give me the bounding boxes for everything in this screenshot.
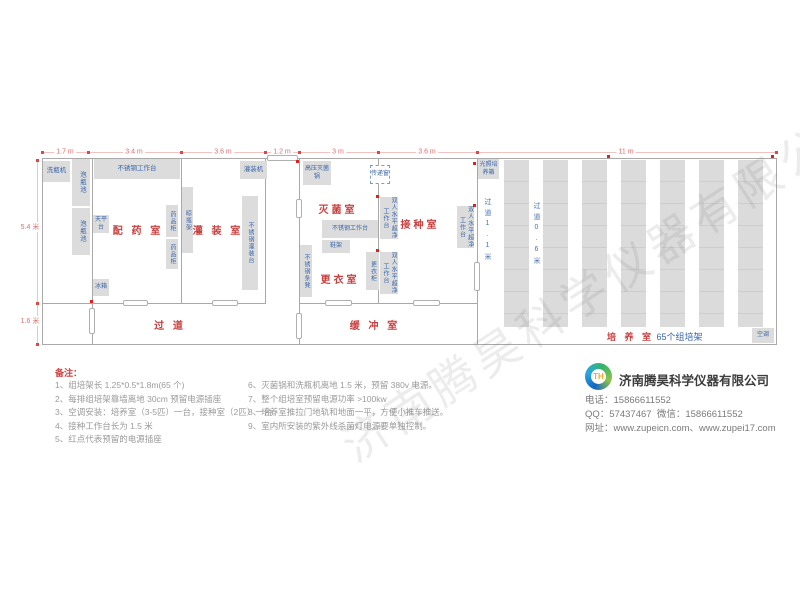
dim-label-2: 3.4 m (123, 149, 145, 156)
equip-steel-workbench-top: 不锈钢工作台 (94, 159, 180, 179)
dim-tick (180, 151, 183, 154)
equip-clean-bench-3: 双人水平超净工作台 (457, 206, 474, 248)
company-name: 济南腾昊科学仪器有限公司 (619, 370, 769, 389)
equip-bottle-drying-rack: 晾瓶架 (182, 187, 193, 253)
wechat-label: 微信： (657, 409, 686, 420)
dim-label-6: 3.6 m (416, 149, 438, 156)
dim-label-1: 1.7 m (54, 149, 76, 156)
equip-balance-table: 天平台 (93, 215, 109, 233)
room-label-corridor: 过 道 (154, 317, 186, 332)
equip-medicine-cabinet-1: 药品柜 (166, 205, 178, 237)
dimension-line-top (42, 152, 776, 153)
dim-label-left-1: 5.4 米 (19, 222, 42, 232)
logo-initials: TH (585, 363, 612, 390)
dim-label-5: 3 m (330, 149, 346, 156)
aisle-label-1: 过道1.1米 (482, 198, 492, 290)
room-label-changing: 更衣室 (321, 271, 360, 286)
wall-segment (42, 344, 777, 345)
outlet-dot (90, 300, 93, 303)
outlet-dot (296, 160, 299, 163)
wall-segment (42, 158, 43, 345)
dim-tick (377, 151, 380, 154)
aisle-label-2: 过道0.6米 (531, 202, 541, 294)
wall-segment (42, 303, 123, 304)
equip-filling-machine: 灌装机 (240, 161, 267, 179)
dim-tick (264, 151, 267, 154)
culture-rack-column (699, 160, 724, 327)
dim-tick (36, 302, 39, 305)
door-symbol (296, 199, 302, 218)
phone-label: 电话： (585, 395, 614, 406)
wechat-number: 15866611552 (685, 409, 742, 420)
door-symbol (413, 300, 440, 306)
dim-tick (476, 151, 479, 154)
note-item-3: 3、空调安装：培养室（3-5匹）一台，接种室（2匹）一台。 (55, 406, 281, 420)
door-symbol (325, 300, 352, 306)
outlet-dot (376, 195, 379, 198)
dim-label-3: 3.6 m (212, 149, 234, 156)
dim-tick (36, 343, 39, 346)
equip-steel-bench-stool: 不锈钢条凳 (300, 245, 312, 297)
wall-segment (238, 303, 265, 304)
culture-rack-column (738, 160, 763, 327)
note-item-5: 5、红点代表预留的电源插座 (55, 433, 281, 447)
wall-segment (352, 303, 413, 304)
equip-air-conditioner: 空调 (752, 328, 774, 343)
equip-clean-bench-1: 双人水平超净工作台 (380, 197, 398, 239)
note-item-2: 2、每排组培架靠墙离地 30cm 预留电源插座 (55, 393, 281, 407)
web-urls: www.zupeicn.com、www.zupei17.com (614, 423, 776, 434)
door-sliding-culture (474, 262, 480, 291)
wall-segment (92, 334, 93, 345)
door-symbol (296, 313, 302, 339)
culture-rack-count: 65个组培架 (657, 332, 703, 342)
wall-segment (148, 303, 212, 304)
dim-label-7: 11 m (616, 149, 635, 156)
door-symbol (89, 308, 95, 334)
culture-rack-column (582, 160, 607, 327)
door-entry (267, 155, 298, 161)
floorplan-canvas: 济南腾昊科学仪器有限公司 1.7 m 3.4 m 3.6 m 1.2 m 3 m… (0, 0, 800, 600)
door-symbol (212, 300, 238, 306)
dim-tick (41, 151, 44, 154)
contact-qq-wechat: QQ：57437467 微信：15866611552 (585, 406, 743, 420)
notes-column-2: 6、灭菌锅和洗瓶机离地 1.5 米，预留 380v 电源。 7、整个组培室预留电… (248, 379, 448, 433)
culture-room-name: 培 养 室 (607, 332, 654, 342)
dim-tick (87, 151, 90, 154)
equip-fridge: 冰箱 (93, 279, 109, 296)
culture-rack-column (621, 160, 646, 327)
outlet-dot (473, 162, 476, 165)
equip-pass-box: 传递窗 (370, 165, 390, 184)
dim-label-left-2: 1.6 米 (19, 316, 42, 326)
equip-clean-bench-2: 双人水平超净工作台 (380, 252, 398, 294)
room-label-preparation: 配 药 室 (113, 222, 164, 237)
door-symbol (123, 300, 148, 306)
room-label-buffer: 缓 冲 室 (350, 317, 401, 332)
notes-column-1: 1、组培架长 1.25*0.5*1.8m(65 个) 2、每排组培架靠墙离地 3… (55, 379, 281, 447)
equip-medicine-cabinet-2: 药品柜 (166, 239, 178, 269)
note-item-6: 6、灭菌锅和洗瓶机离地 1.5 米，预留 380v 电源。 (248, 379, 448, 393)
wall-segment (299, 303, 300, 313)
outlet-dot (607, 155, 610, 158)
wall-segment (298, 158, 776, 159)
dim-tick (36, 159, 39, 162)
dim-tick (298, 151, 301, 154)
wall-segment (265, 158, 266, 304)
outlet-dot (473, 204, 476, 207)
web-label: 网址： (585, 423, 614, 434)
notes-title: 备注： (55, 366, 82, 379)
equip-steel-workbench-sterile: 不锈钢工作台 (322, 220, 378, 238)
qq-number: 57437467 (609, 409, 651, 420)
equip-soak-pool-2: 泡瓶池 (72, 208, 90, 255)
room-label-culture: 培 养 室 65个组培架 (607, 330, 703, 343)
wall-segment (299, 158, 300, 199)
note-item-4: 4、接种工作台长为 1.5 米 (55, 420, 281, 434)
culture-rack-column (504, 160, 529, 327)
wall-segment (440, 303, 477, 304)
equip-soak-pool-1: 泡瓶池 (72, 159, 90, 206)
room-label-inoculation: 接种室 (401, 216, 440, 231)
contact-phone: 电话：15866611552 (585, 392, 671, 406)
wall-segment (299, 303, 325, 304)
wall-segment (299, 339, 300, 345)
note-item-1: 1、组培架长 1.25*0.5*1.8m(65 个) (55, 379, 281, 393)
equip-bottle-washer: 洗瓶机 (43, 161, 70, 182)
equip-steel-filling-table: 不锈钢灌装台 (242, 196, 258, 290)
equip-autoclave: 高压灭菌锅 (303, 161, 331, 185)
contact-web: 网址：www.zupeicn.com、www.zupei17.com (585, 420, 776, 434)
outlet-dot (771, 155, 774, 158)
qq-label: QQ： (585, 409, 609, 420)
equip-locker: 更衣柜 (366, 252, 379, 290)
room-label-sterilization: 灭菌室 (319, 201, 358, 216)
dim-tick (775, 151, 778, 154)
culture-rack-column (660, 160, 685, 327)
outlet-dot (376, 249, 379, 252)
equip-light-incubator: 光照培养箱 (478, 159, 499, 179)
phone-number: 15866611552 (614, 395, 671, 406)
note-item-9: 9、室内所安装的紫外线杀菌灯电源要单独控制。 (248, 420, 448, 434)
equip-shoe-rack: 鞋架 (322, 240, 350, 253)
note-item-7: 7、整个组培室预留电源功率 >100kw (248, 393, 448, 407)
room-label-filling: 灌 装 室 (193, 222, 244, 237)
culture-rack-column (543, 160, 568, 327)
company-logo: TH (585, 363, 612, 390)
note-item-8: 8、培养室推拉门地轨和地面一平，方便小推车推送。 (248, 406, 448, 420)
wall-segment (776, 158, 777, 345)
wall-segment (477, 291, 478, 345)
